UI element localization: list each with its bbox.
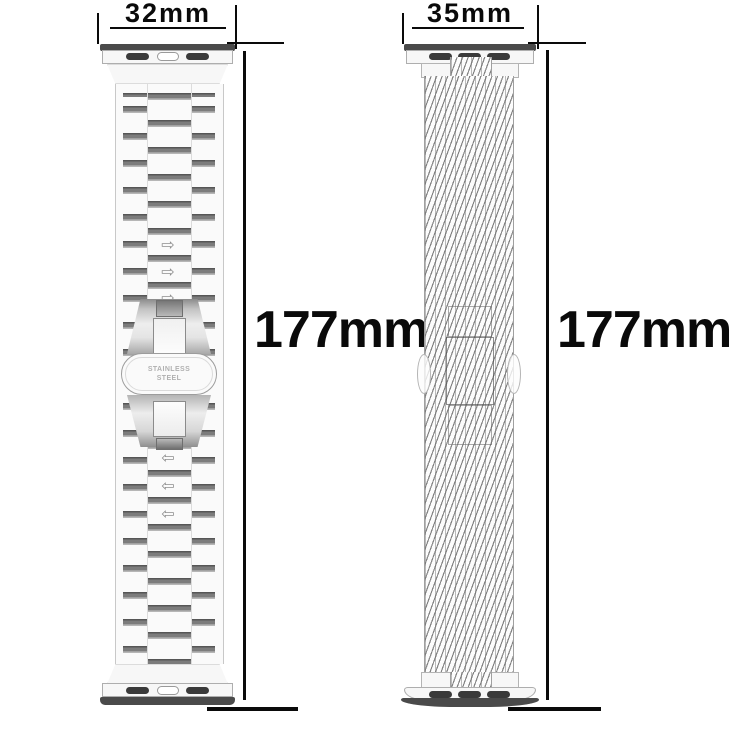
mesh-clasp-bulge-left: [417, 354, 431, 394]
mesh-strap-through-lug-top: [450, 57, 492, 77]
slide-left-arrow-icon: ⇦: [150, 450, 186, 466]
left-length-label: 177mm: [254, 302, 428, 358]
left-lug-shoulder-top: [107, 64, 228, 84]
left-width-dimension-line: [110, 27, 226, 29]
left-length-dimension-line: [243, 51, 246, 700]
left-width-label: 32mm: [100, 0, 236, 28]
lug-slot-icon: [126, 53, 149, 60]
lug-slot-icon: [126, 687, 149, 694]
right-lug-plate-bottom: [401, 698, 539, 707]
clasp-engraving-line2: STEEL: [148, 374, 190, 383]
right-width-label: 35mm: [402, 0, 538, 28]
clasp-hinge-top: [156, 300, 183, 317]
mesh-clasp-outline-middle: [446, 337, 494, 405]
slide-right-arrow-icon: ⇨: [150, 264, 186, 280]
clasp-engraving-line1: STAINLESS: [148, 365, 190, 374]
clasp-center-oval: STAINLESS STEEL: [121, 353, 217, 395]
clasp-engraving: STAINLESS STEEL: [148, 365, 190, 383]
right-length-tick-bottom: [508, 707, 601, 711]
slide-left-arrow-icon: ⇦: [150, 506, 186, 522]
slide-right-arrow-icon: ⇨: [150, 237, 186, 253]
lug-slot-icon: [429, 53, 452, 60]
clasp-fold-plate-bottom: [153, 401, 186, 437]
lug-release-button-icon: [157, 52, 179, 61]
left-width-tick-left: [97, 13, 99, 44]
right-width-tick-left: [402, 13, 404, 44]
mesh-clasp-bulge-right: [507, 354, 521, 394]
clasp-hinge-bottom: [156, 438, 183, 450]
right-length-tick-top: [528, 42, 586, 44]
left-lug-shoulder-bottom: [107, 664, 228, 684]
mesh-clasp-outline-lower: [448, 405, 492, 445]
slide-left-arrow-icon: ⇦: [150, 478, 186, 494]
left-lug-plate-bottom: [100, 697, 235, 705]
lug-release-button-icon: [157, 686, 179, 695]
right-length-label: 177mm: [557, 302, 731, 358]
product-dimension-diagram: 32mm 177mm ⇨ ⇨ ⇨ ⇦ ⇦ ⇦ STAINLESS STEEL: [0, 0, 750, 750]
left-length-tick-bottom: [207, 707, 298, 711]
band-edge-line: [115, 84, 116, 664]
lug-slot-icon: [429, 691, 452, 698]
lug-slot-icon: [186, 53, 209, 60]
lug-slot-icon: [186, 687, 209, 694]
right-width-dimension-line: [412, 27, 524, 29]
clasp-fold-plate-top: [153, 318, 186, 354]
band-edge-line: [223, 84, 224, 664]
mesh-clasp-outline-upper: [448, 306, 492, 337]
lug-slot-icon: [487, 691, 510, 698]
lug-slot-icon: [458, 691, 481, 698]
right-length-dimension-line: [546, 50, 549, 700]
clasp-oval-inner-ring: STAINLESS STEEL: [125, 357, 213, 391]
left-length-tick-top: [227, 42, 284, 44]
